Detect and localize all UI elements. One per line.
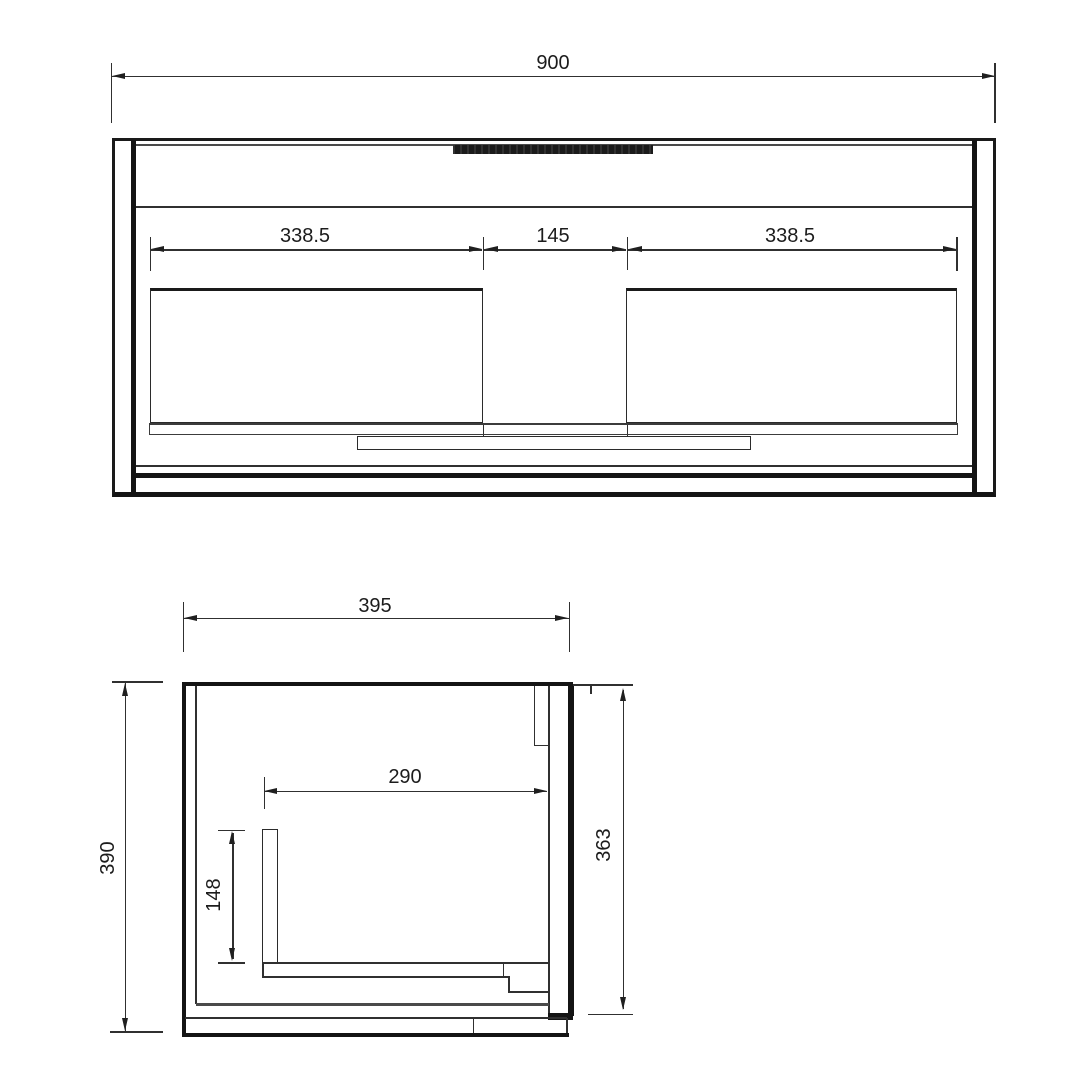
dim-338-right-label: 338.5 <box>765 226 815 246</box>
dim-363-label: 363 <box>594 828 614 861</box>
sv-back-notch-vertical <box>534 686 535 746</box>
dim-145-arrow-b <box>612 246 625 252</box>
dim-900-ext-right <box>994 63 996 123</box>
dim-row-ext-left <box>150 237 152 271</box>
dim-338-right-arrow-a <box>629 246 642 252</box>
countertop-line <box>136 206 972 208</box>
sv-front-inner-line <box>195 686 197 1004</box>
dim-390-tick-bottom <box>110 1031 163 1033</box>
left-side-panel-line <box>131 140 136 495</box>
dim-900-line <box>112 76 995 78</box>
technical-drawing-canvas: 900 338.5 145 338.5 <box>0 0 1080 1080</box>
dim-338-left-line <box>151 249 482 251</box>
dim-395-arrow-right <box>555 615 568 621</box>
dim-390-line <box>125 683 127 1031</box>
dim-338-right-line <box>628 249 956 251</box>
dim-145-arrow-a <box>485 246 498 252</box>
dim-290-line <box>264 791 547 793</box>
dim-900-arrow-left <box>112 73 125 79</box>
dim-390-arrow-down <box>122 1018 128 1031</box>
sv-bottom-edge <box>182 1033 569 1037</box>
right-side-panel-line <box>972 140 977 495</box>
bottom-rail-band <box>149 423 958 435</box>
dim-row-ext-mid2 <box>627 237 629 270</box>
dim-363-arrow-down <box>620 997 626 1010</box>
dim-148-arrow-up <box>229 831 235 844</box>
dim-148-line <box>232 833 234 959</box>
dim-363-line <box>623 690 625 1009</box>
drawer-left <box>150 288 483 423</box>
dim-row-ext-right <box>956 237 958 271</box>
dim-338-right-arrow-b <box>943 246 956 252</box>
sv-shelf-divider <box>503 962 505 977</box>
dim-395-ext-left <box>183 602 185 652</box>
dim-290-arrow-right <box>534 788 547 794</box>
dim-148-label: 148 <box>204 878 224 911</box>
dim-363-arrow-up <box>620 688 626 701</box>
dim-338-left-label: 338.5 <box>280 226 330 246</box>
dim-145-label: 145 <box>536 226 569 246</box>
dim-row-ext-mid1 <box>483 237 485 270</box>
sv-shelf-step-bottom <box>508 991 549 993</box>
dim-363-tick-bottom <box>588 1014 633 1016</box>
dim-338-left-arrow-a <box>151 246 164 252</box>
dim-390-tick-top <box>112 681 163 683</box>
sv-front-edge <box>182 682 186 1036</box>
dim-148-tick-bottom <box>218 962 245 964</box>
dim-390-label: 390 <box>98 841 118 874</box>
sv-top-edge <box>182 682 573 686</box>
dim-290-arrow-left <box>264 788 277 794</box>
dim-145-line <box>484 249 626 251</box>
dim-395-label: 395 <box>358 596 391 616</box>
sv-partition-left-extension <box>262 963 264 977</box>
dim-900-arrow-right <box>982 73 995 79</box>
bottom-inner-line <box>136 465 972 467</box>
dim-900-label: 900 <box>536 53 569 73</box>
sv-shelf-top <box>262 962 549 964</box>
sv-shelf-bottom <box>262 976 509 978</box>
drawer-right <box>626 288 957 423</box>
sv-bottom-dark-line <box>196 1003 549 1006</box>
dim-390-arrow-up <box>122 683 128 696</box>
sv-back-panel-inner-line <box>548 686 550 1016</box>
sv-bottom-band-line <box>185 1017 567 1019</box>
dim-395-arrow-left <box>184 615 197 621</box>
sv-back-panel <box>568 684 574 1016</box>
sv-top-extension-tick <box>590 686 592 694</box>
toe-recess-rect <box>357 436 751 450</box>
dim-290-label: 290 <box>388 767 421 787</box>
sv-back-notch-step <box>534 745 548 746</box>
sv-shelf-step-vertical <box>508 976 510 992</box>
dim-148-arrow-down <box>229 948 235 961</box>
dim-338-left-arrow-b <box>469 246 482 252</box>
sv-top-extension-line <box>573 684 633 686</box>
sv-bottom-band-divider <box>473 1017 475 1034</box>
handle-recess-strip <box>453 145 653 154</box>
sv-drawer-partition <box>262 829 278 963</box>
dim-900-ext-left <box>111 63 113 123</box>
bottom-thick-band <box>136 473 972 478</box>
dim-395-line <box>183 618 569 620</box>
dim-395-ext-right <box>569 602 571 652</box>
